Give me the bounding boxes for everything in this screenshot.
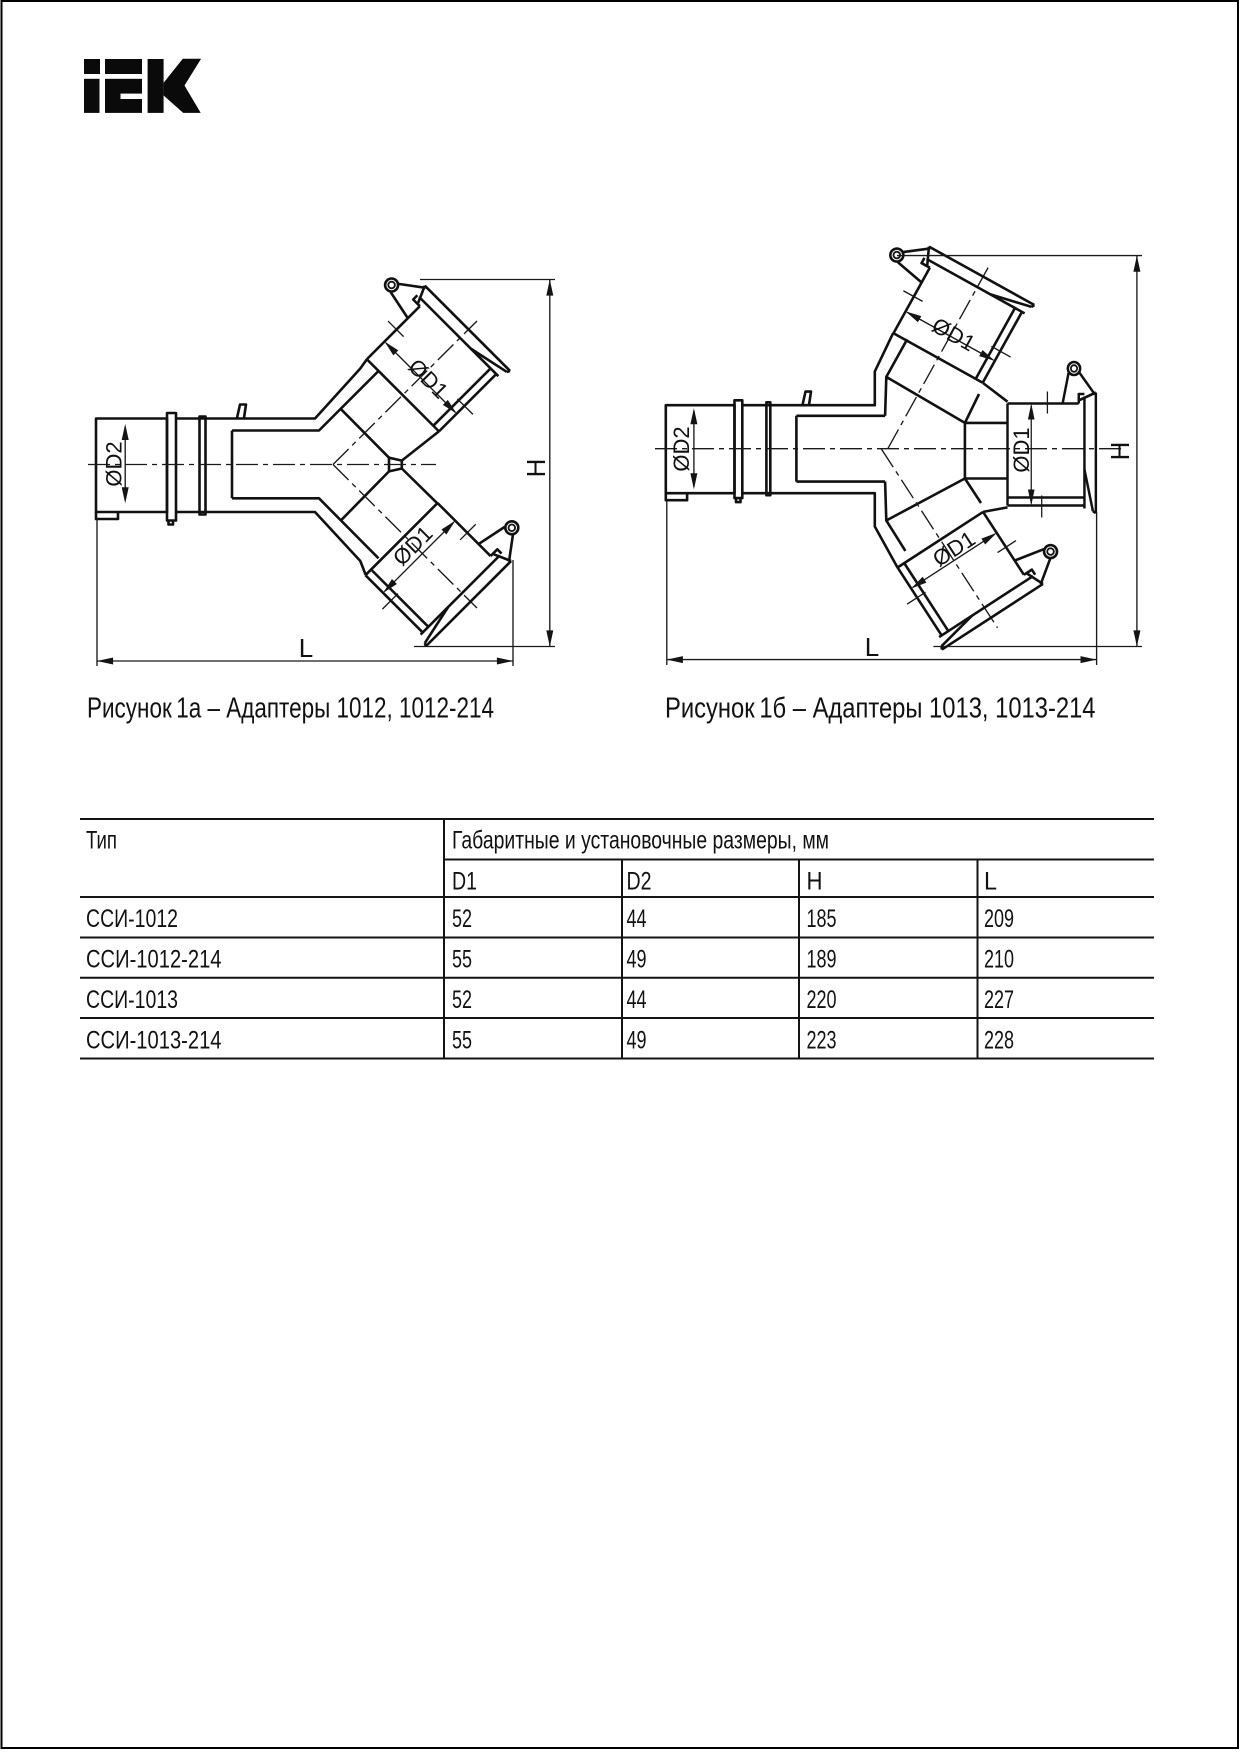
svg-text:L: L: [984, 867, 997, 895]
svg-text:ØD2: ØD2: [669, 426, 694, 471]
svg-text:ССИ-1013: ССИ-1013: [86, 986, 178, 1014]
svg-text:210: 210: [984, 946, 1014, 974]
svg-text:L: L: [865, 632, 879, 662]
svg-text:209: 209: [984, 905, 1014, 933]
svg-text:ØD2: ØD2: [102, 441, 127, 486]
svg-text:49: 49: [627, 946, 647, 974]
svg-text:220: 220: [807, 986, 837, 1014]
svg-text:Тип: Тип: [86, 827, 117, 855]
svg-text:ØD1: ØD1: [1009, 427, 1034, 472]
svg-text:228: 228: [984, 1027, 1014, 1055]
svg-text:H: H: [521, 459, 551, 478]
svg-text:49: 49: [627, 1027, 647, 1055]
svg-text:ССИ-1013-214: ССИ-1013-214: [86, 1027, 222, 1055]
svg-text:ССИ-1012: ССИ-1012: [86, 905, 178, 933]
svg-text:H: H: [1105, 442, 1135, 461]
svg-text:44: 44: [627, 905, 647, 933]
svg-text:44: 44: [627, 986, 647, 1014]
svg-text:227: 227: [984, 986, 1014, 1014]
svg-text:189: 189: [807, 946, 837, 974]
svg-text:L: L: [299, 633, 313, 663]
svg-text:D1: D1: [452, 867, 477, 895]
svg-text:ССИ-1012-214: ССИ-1012-214: [86, 946, 222, 974]
svg-text:55: 55: [452, 1027, 472, 1055]
svg-text:D2: D2: [627, 867, 652, 895]
svg-text:55: 55: [452, 946, 472, 974]
svg-text:52: 52: [452, 986, 472, 1014]
svg-text:Рисунок 1б – Адаптеры 1013, 10: Рисунок 1б – Адаптеры 1013, 1013-214: [665, 693, 1096, 725]
svg-text:Габаритные и установочные разм: Габаритные и установочные размеры, мм: [452, 827, 829, 855]
svg-text:223: 223: [807, 1027, 837, 1055]
svg-text:H: H: [807, 867, 823, 895]
svg-text:185: 185: [807, 905, 837, 933]
svg-text:Рисунок 1а – Адаптеры 1012, 10: Рисунок 1а – Адаптеры 1012, 1012-214: [87, 693, 494, 725]
svg-text:52: 52: [452, 905, 472, 933]
